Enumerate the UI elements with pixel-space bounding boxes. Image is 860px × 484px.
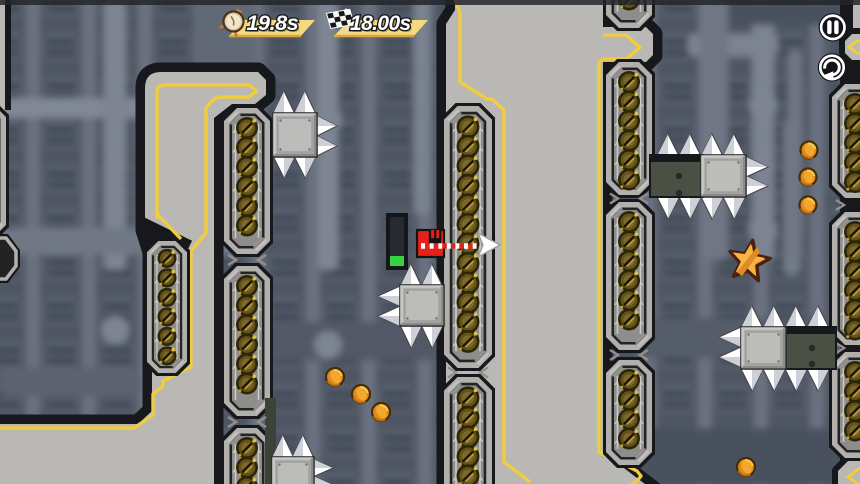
svg-text:18.00s: 18.00s bbox=[350, 12, 411, 35]
svg-text:19.8s: 19.8s bbox=[247, 11, 299, 35]
